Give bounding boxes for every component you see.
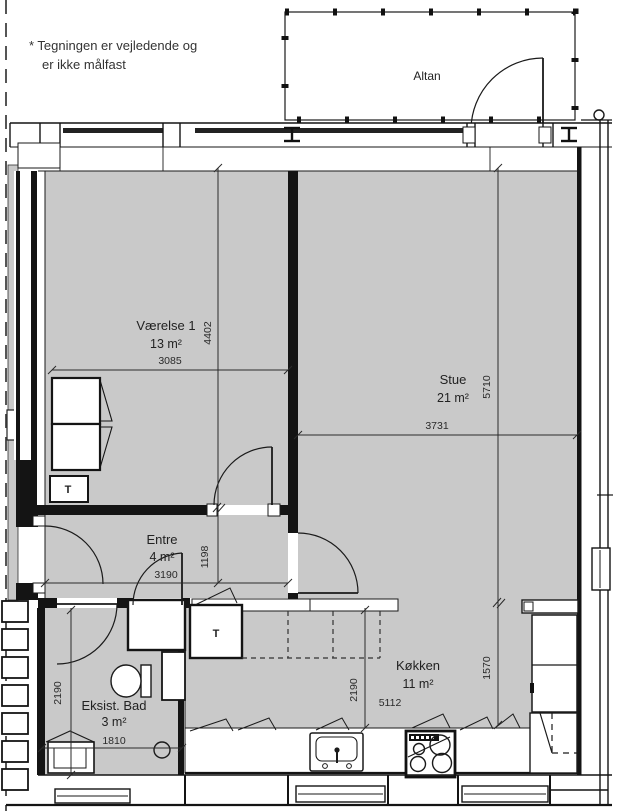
balcony-label: Altan <box>413 69 440 83</box>
column-marker-circle <box>594 110 604 120</box>
shaft-label: T <box>213 628 220 640</box>
dim-vaerelse-width: 3085 <box>158 355 182 367</box>
vaerelse-door-jamb-left <box>207 504 217 516</box>
exterior-stair-gallery <box>2 601 28 790</box>
kitchen-sink <box>310 733 363 771</box>
room-koekken-area: 11 m² <box>402 677 433 691</box>
window-glazing-mid <box>195 128 467 133</box>
toilet-bowl <box>111 665 141 697</box>
room-entre-name: Entre <box>146 532 177 547</box>
room-stue-area: 21 m² <box>437 391 469 405</box>
wall-vaerelse-entre-left <box>38 505 215 515</box>
corner-window-sill <box>18 143 60 168</box>
dim-entre-width: 3190 <box>154 569 178 581</box>
dim-stue-width: 3731 <box>425 420 449 432</box>
floorplan-page: Altan <box>0 0 620 811</box>
toilet-cistern <box>141 665 151 697</box>
right-wall-window <box>592 548 610 590</box>
window-glazing-left <box>63 128 163 133</box>
stove <box>406 731 455 777</box>
vaerelse-door-jamb-right <box>268 504 280 516</box>
floorplan-drawing: Altan <box>0 0 620 811</box>
dim-koekken-depth: 1570 <box>481 656 493 680</box>
dim-koekken-width: 5112 <box>379 697 402 709</box>
washer-cabinet <box>128 600 185 650</box>
room-bad-name: Eksist. Bad <box>81 698 146 713</box>
balcony-door-jamb-left <box>463 127 475 143</box>
corner-cabinet <box>530 713 577 773</box>
room-koekken-name: Køkken <box>396 658 440 673</box>
shaft-box-hall: T <box>50 476 88 502</box>
dim-koekken-clearance: 2190 <box>348 678 360 702</box>
note-line-1: * Tegningen er vejledende og <box>29 38 197 53</box>
floor-drain <box>154 742 170 758</box>
room-stue-name: Stue <box>440 372 467 387</box>
dim-bad-width: 1810 <box>102 735 126 747</box>
dim-stue-height: 5710 <box>481 375 493 399</box>
kitchen-counter-south <box>185 728 577 773</box>
front-door-jamb-top <box>33 516 45 526</box>
dim-entre-height: 1198 <box>199 546 211 569</box>
dim-vaerelse-height: 4402 <box>202 321 214 345</box>
room-bad-area: 3 m² <box>102 715 127 729</box>
room-vaerelse-1-name: Værelse 1 <box>136 318 195 333</box>
room-vaerelse-1-area: 13 m² <box>150 337 182 351</box>
room-entre-area: 4 m² <box>150 550 175 564</box>
wall-vaerelse-stue <box>288 171 298 533</box>
balcony-door-jamb-right <box>539 127 551 143</box>
dim-bad-depth: 2190 <box>52 681 64 705</box>
shaft-label: T <box>65 484 72 496</box>
bathroom-shelf <box>162 652 185 700</box>
note-line-2: er ikke målfast <box>42 57 126 72</box>
